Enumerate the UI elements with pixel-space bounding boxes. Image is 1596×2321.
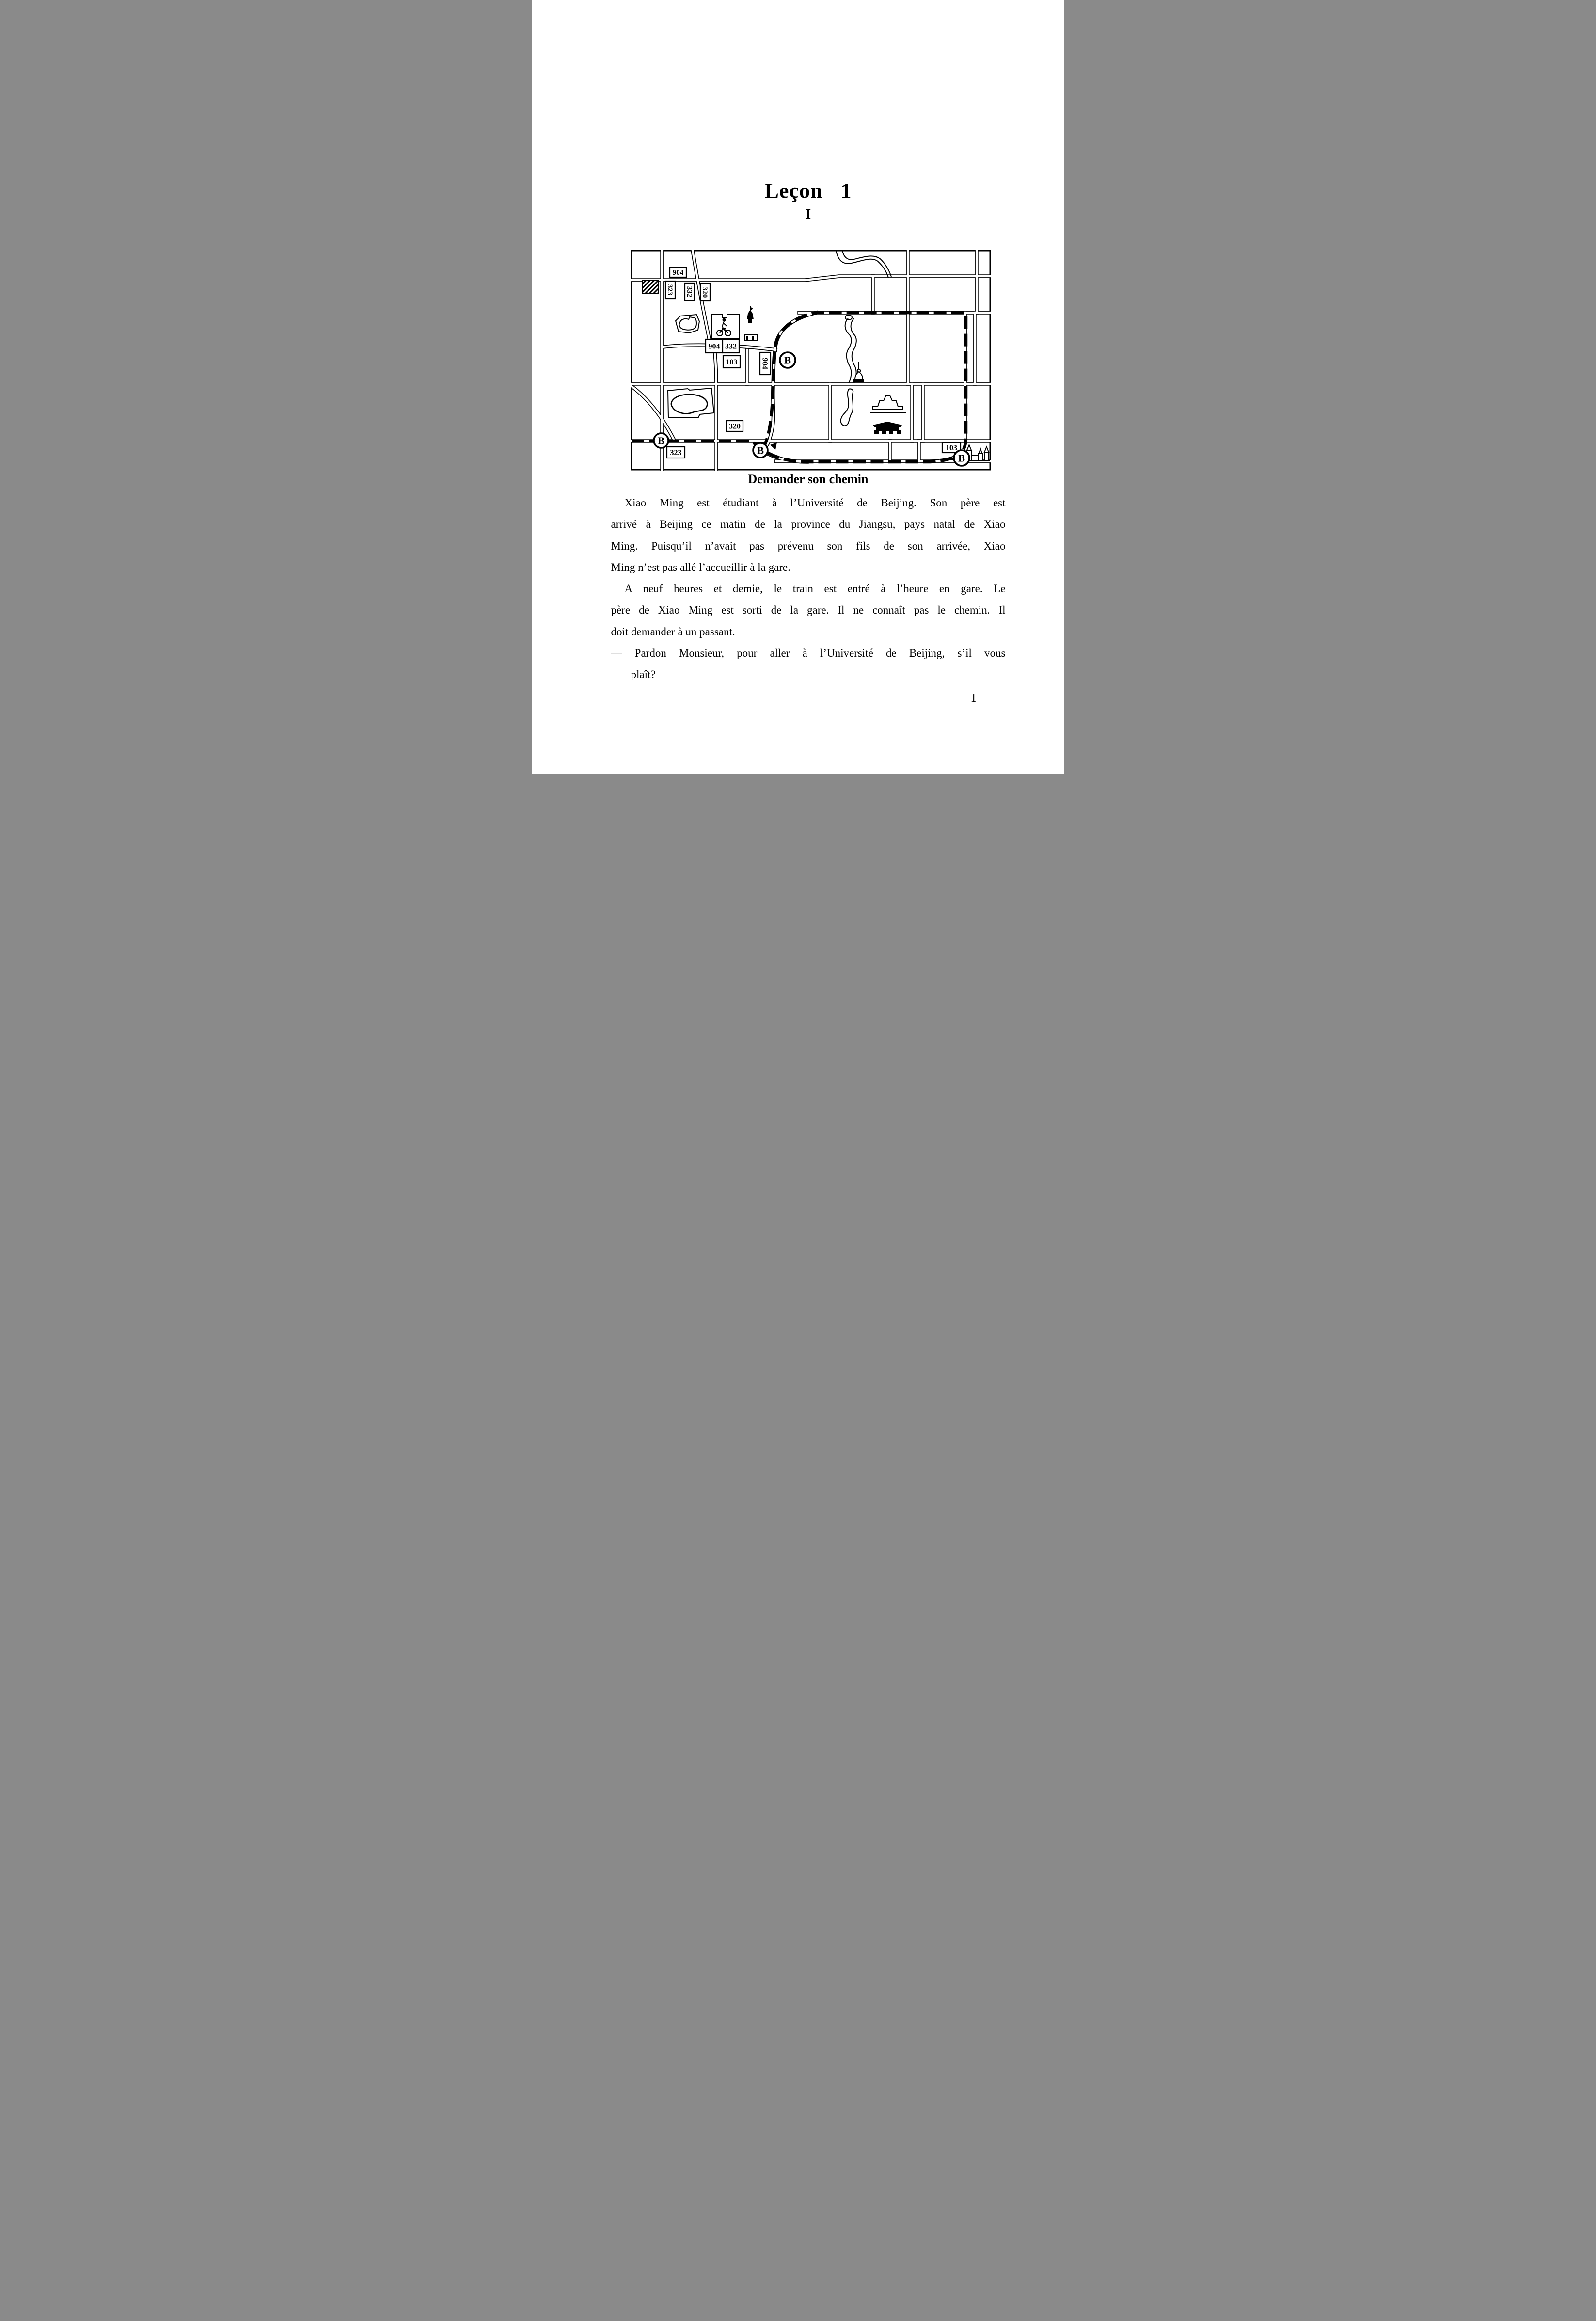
body-line-8: — Pardon Monsieur, pour aller à l’Univer… — [611, 643, 1006, 664]
route-label-323-upper: 323 — [665, 281, 675, 299]
body-line-3: Ming. Puisqu’il n’avait pas prévenu son … — [611, 536, 1006, 557]
route-label-332-junction: 332 — [723, 339, 739, 353]
page-title: Leçon1 — [553, 180, 1064, 202]
svg-text:B: B — [757, 445, 763, 457]
textbook-page: Leçon1 I — [532, 0, 1064, 774]
route-label-320-lower: 320 — [727, 421, 743, 431]
svg-text:323: 323 — [665, 284, 673, 296]
route-label-103-junction: 103 — [723, 356, 740, 368]
park-lake-southwest — [668, 388, 714, 417]
svg-text:904: 904 — [760, 358, 769, 369]
body-line-9: plaît? — [611, 664, 1006, 685]
bus-stop-station: B — [954, 450, 969, 466]
svg-text:332: 332 — [685, 286, 693, 298]
bus-stop-north: B — [780, 352, 795, 368]
route-label-323-lower: 323 — [667, 447, 685, 458]
page-number: 1 — [971, 692, 1000, 704]
svg-text:B: B — [958, 453, 964, 464]
svg-text:904: 904 — [708, 342, 720, 350]
body-line-5: A neuf heures et demie, le train est ent… — [611, 578, 1006, 600]
bus-stop-center: B — [753, 443, 768, 458]
svg-text:323: 323 — [670, 449, 681, 457]
route-label-904-vertical: 904 — [760, 352, 771, 375]
svg-text:320: 320 — [729, 422, 741, 430]
svg-text:320: 320 — [700, 287, 708, 298]
lesson-word: Leçon — [765, 179, 823, 203]
route-label-904-top: 904 — [670, 268, 686, 277]
city-map-figure: 904 323 332 320 904 332 — [631, 250, 991, 471]
bus-stop-west: B — [654, 433, 668, 448]
svg-text:103: 103 — [726, 358, 737, 366]
body-line-1: Xiao Ming est étudiant à l’Université de… — [611, 492, 1006, 514]
section-numeral: I — [553, 207, 1064, 221]
hatched-building-icon — [643, 281, 659, 294]
park-pond-northwest — [676, 315, 699, 333]
svg-text:332: 332 — [725, 342, 737, 350]
body-line-6: père de Xiao Ming est sorti de la gare. … — [611, 600, 1006, 621]
route-label-320-upper: 320 — [700, 284, 710, 301]
body-line-2: arrivé à Beijing ce matin de la province… — [611, 514, 1006, 535]
body-text: Xiao Ming est étudiant à l’Université de… — [611, 492, 1006, 686]
svg-text:B: B — [784, 355, 790, 366]
body-line-4: Ming n’est pas allé l’accueillir à la ga… — [611, 557, 1006, 578]
svg-text:B: B — [657, 435, 664, 447]
map-caption: Demander son chemin — [553, 473, 1064, 486]
route-label-904-junction: 904 — [706, 339, 723, 353]
body-line-7: doit demander à un passant. — [611, 621, 1006, 643]
svg-text:904: 904 — [672, 269, 683, 277]
svg-text:103: 103 — [946, 444, 957, 452]
route-label-332-upper: 332 — [685, 283, 695, 300]
lesson-number: 1 — [840, 180, 852, 202]
